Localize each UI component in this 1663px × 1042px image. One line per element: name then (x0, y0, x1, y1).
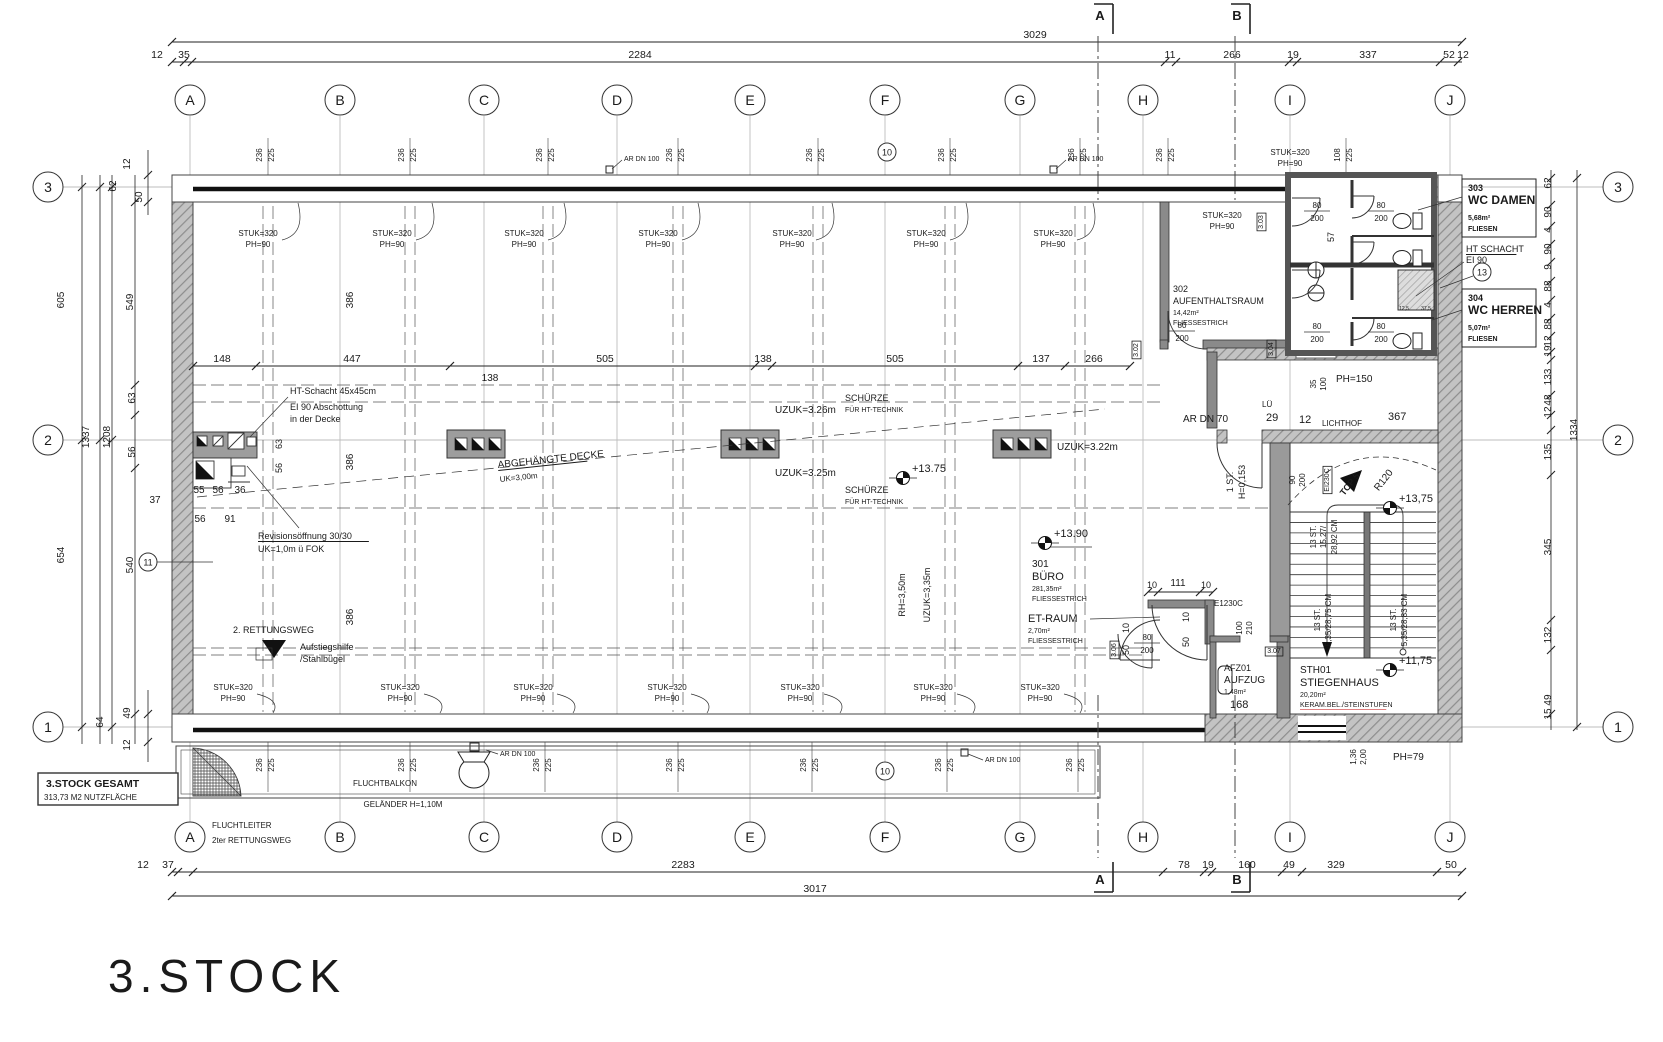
grid-label-D: D (612, 92, 622, 108)
annotation: 3.02 (1133, 343, 1140, 357)
floor-plan-page: AABBCCDDEEFFGGHHIIJJ33221130291235228411… (0, 0, 1663, 1042)
annotation: R120 (1372, 467, 1396, 493)
annotation: FLIESSESTRICH (1173, 320, 1228, 327)
annotation: UZUK=3.25m (775, 468, 836, 479)
door-size: 200 (1140, 646, 1154, 655)
dim-value: 52 (1443, 49, 1455, 61)
door-size: 200 (1310, 214, 1324, 223)
annotation: BÜRO (1032, 571, 1064, 583)
annotation: STIEGENHAUS (1300, 677, 1379, 689)
stuk-label: STUK=320 (906, 229, 946, 238)
annotation: 57 (1326, 232, 1336, 242)
annotation: 13 ST. (1313, 609, 1322, 632)
door-size: 80 (1377, 201, 1386, 210)
annotation: 12 (1299, 414, 1311, 426)
annotation: 301 (1032, 559, 1049, 570)
window-dim: 225 (677, 758, 686, 772)
annotation: 64 (95, 716, 106, 728)
annotation: 90 (1288, 475, 1297, 484)
annotation: 14,42m² (1173, 310, 1199, 317)
annotation: EI 90 Abschottung (290, 402, 363, 412)
grid-label-H: H (1138, 92, 1148, 108)
window-dim: 225 (409, 148, 418, 162)
level-value: +13,75 (1399, 493, 1433, 505)
annotation: 29 (1266, 412, 1278, 424)
stuk-leader (1077, 203, 1095, 240)
wc-block (1288, 175, 1434, 353)
annotation: 10 (1121, 623, 1131, 633)
annotation: 56 (212, 485, 224, 496)
toilet (1393, 334, 1411, 349)
dim-value: 19 (1287, 49, 1299, 61)
annotation: 56 (274, 463, 284, 473)
annotation: 3.07 (1267, 648, 1281, 655)
grid-label-J: J (1447, 92, 1454, 108)
stuk-label: STUK=320 (1020, 683, 1060, 692)
annotation: 12 (1543, 335, 1554, 347)
window-dim: 236 (665, 758, 674, 772)
stuk-label: PH=90 (512, 240, 537, 249)
annotation: LICHTHOF (1322, 419, 1362, 428)
annotation: KERAM.BEL./STEINSTUFEN (1300, 702, 1393, 709)
annotation: 605 (56, 291, 67, 308)
annotation: SCHÜRZE (845, 393, 889, 403)
grid-label-E: E (745, 92, 754, 108)
dim-value: 49 (1283, 859, 1295, 871)
annotation: HT SCHACHT (1466, 244, 1524, 254)
grid-label-J: J (1447, 829, 1454, 845)
window-dim: 225 (677, 148, 686, 162)
lift-shaft-north (1270, 636, 1288, 642)
window-dim: 236 (255, 758, 264, 772)
annotation: AUFZUG (1224, 675, 1265, 686)
stuk-leader (950, 203, 968, 240)
window-dim: 236 (255, 148, 264, 162)
window-dim: 225 (811, 758, 820, 772)
grid-label-C: C (479, 92, 489, 108)
window-dim: 236 (665, 148, 674, 162)
dim-value: 505 (886, 353, 904, 365)
annotation: TOP 5 (1338, 471, 1362, 497)
dim-value: 138 (754, 353, 772, 365)
wall-left (172, 175, 193, 742)
annotation: 13 ST. (1389, 609, 1398, 632)
annotation: 1 ST. (1225, 472, 1235, 493)
window-dim: 236 (535, 148, 544, 162)
annotation: 37 (149, 495, 161, 506)
annotation: 302 (1173, 284, 1188, 294)
stuk-label: PH=90 (1278, 159, 1303, 168)
note-number: 10 (882, 148, 892, 158)
dim-value: 148 (213, 353, 231, 365)
stuk-label: STUK=320 (913, 683, 953, 692)
annotation: 62 (108, 180, 119, 192)
drawing-title: 3.STOCK (108, 950, 346, 1002)
annotation: 2,70m² (1028, 628, 1050, 635)
section-letter-A: A (1095, 8, 1105, 23)
door-size: 80 (1377, 322, 1386, 331)
window-dim: 236 (1065, 758, 1074, 772)
annotation: SCHÜRZE (845, 485, 889, 495)
annotation: LÜ (1262, 400, 1272, 409)
section-letter-B: B (1232, 872, 1241, 887)
annotation: 13 ST. (1309, 526, 1318, 549)
door-size: 80 (1313, 201, 1322, 210)
annotation: HT-Schacht 45x45cm (290, 386, 376, 396)
grid-label-H: H (1138, 829, 1148, 845)
annotation: 138 (482, 373, 499, 384)
note-number: 10 (880, 767, 890, 777)
stuk-label: PH=90 (788, 694, 813, 703)
window-dim: 225 (1077, 758, 1086, 772)
dim-value: 2284 (628, 49, 652, 61)
annotation: 111 (1170, 578, 1186, 589)
lift-shaft-west (1210, 636, 1216, 718)
annotation: 3.04 (1268, 342, 1275, 356)
room-box-line: 5,07m² (1468, 325, 1491, 332)
annotation: 50 (1121, 645, 1131, 655)
stuk-label: PH=90 (646, 240, 671, 249)
grid-label-B: B (335, 92, 344, 108)
grid-label-1: 1 (44, 719, 52, 735)
annotation: 15,27/ (1319, 525, 1328, 548)
annotation: 4 (1543, 227, 1554, 233)
perimeter-walls (172, 175, 1462, 742)
level-value: +13.75 (912, 463, 946, 475)
window-dim: 108 (1333, 148, 1342, 162)
annotation: 56 (127, 446, 138, 458)
dim-value: 266 (1223, 49, 1241, 61)
legend-line1: 3.STOCK GESAMT (46, 778, 140, 790)
toilet (1393, 214, 1411, 229)
annotation: 2ter RETTUNGSWEG (212, 836, 291, 845)
annotation: UZUK=3,35m (922, 568, 932, 623)
annotation: FLIESSESTRICH (1032, 596, 1087, 603)
wall-etraum-north (1148, 600, 1214, 608)
window-dim: 225 (544, 758, 553, 772)
stuk-leader (257, 694, 275, 713)
stuk-label: STUK=320 (638, 229, 678, 238)
annotation: UZUK=3.22m (1057, 442, 1118, 453)
grid-label-1: 1 (1614, 719, 1622, 735)
stuk-label: STUK=320 (372, 229, 412, 238)
annotation: 12 (122, 739, 133, 751)
annotation: 20,20m² (1300, 692, 1326, 699)
stuk-label: STUK=320 (238, 229, 278, 238)
stuk-label: STUK=320 (772, 229, 812, 238)
grid-label-B: B (335, 829, 344, 845)
annotation: 90 (1543, 206, 1554, 218)
stuk-label: PH=90 (921, 694, 946, 703)
annotation: AUFENTHALTSRAUM (1173, 296, 1264, 306)
annotation: 100 (1319, 377, 1328, 391)
window-dim: 236 (397, 758, 406, 772)
grid-label-C: C (479, 829, 489, 845)
grid-label-G: G (1015, 829, 1026, 845)
window-dim: 225 (817, 148, 826, 162)
annotation: 168 (1230, 699, 1248, 711)
annotation: 9 (1543, 264, 1554, 270)
annotation: 28,92 CM (1330, 519, 1339, 554)
wall-stair-west (1270, 443, 1290, 636)
annotation: UK=3,00m (499, 471, 538, 484)
annotation: AR DN 100 (1068, 156, 1104, 163)
stuk-leader (682, 203, 700, 240)
annotation: 3.03 (1258, 215, 1265, 229)
annotation: 48 (1543, 394, 1554, 406)
annotation: UK=1,0m ü FOK (258, 544, 324, 554)
room-box-line: WC DAMEN (1468, 193, 1535, 207)
annotation: 133 (1543, 368, 1554, 385)
dim-value: 137 (1032, 353, 1050, 365)
dim-value: 11 (1165, 49, 1176, 61)
grid-label-G: G (1015, 92, 1026, 108)
annotation: EI 90 (1466, 255, 1487, 265)
window-dim: 225 (409, 758, 418, 772)
floor-plan-drawing: AABBCCDDEEFFGGHHIIJJ33221130291235228411… (0, 0, 1663, 1042)
annotation: E1230C (1214, 599, 1243, 608)
room-box-line: WC HERREN (1468, 303, 1542, 317)
annotation: ET-RAUM (1028, 613, 1078, 625)
annotation: 1334 (1569, 418, 1580, 441)
annotation: 2,00 (1359, 749, 1368, 765)
window-dim: 236 (805, 148, 814, 162)
stuk-label: STUK=320 (380, 683, 420, 692)
window-dim: 236 (799, 758, 808, 772)
annotation: 386 (345, 291, 356, 308)
note-number: 13 (1477, 268, 1487, 278)
ar-dn-marker (1050, 166, 1057, 173)
door-size: 200 (1374, 214, 1388, 223)
window-dim: 236 (1155, 148, 1164, 162)
annotation: 49 (122, 707, 133, 719)
annotation: 50 (134, 191, 145, 203)
room-box-line: FLIESEN (1468, 226, 1498, 233)
grid-label-3: 3 (1614, 179, 1622, 195)
stuk-label: PH=90 (521, 694, 546, 703)
annotation: 19 (1543, 345, 1554, 357)
annotation: RH=3,50m (897, 573, 907, 616)
grid-label-E: E (745, 829, 754, 845)
annotation: FLIESSESTRICH (1028, 638, 1083, 645)
window-dim: 225 (267, 758, 276, 772)
annotation: 55 (193, 485, 205, 496)
stuk-label: STUK=320 (647, 683, 687, 692)
grid-label-F: F (881, 92, 890, 108)
toilet (1393, 251, 1411, 266)
dim-value: 329 (1327, 859, 1345, 871)
grid-label-3: 3 (44, 179, 52, 195)
stuk-label: PH=90 (380, 240, 405, 249)
grid-label-I: I (1288, 829, 1292, 845)
annotation: 5,35/28,75 CM (1324, 593, 1333, 646)
stuk-label: STUK=320 (780, 683, 820, 692)
stuk-label: PH=90 (388, 694, 413, 703)
annotation: 88 (1543, 318, 1554, 330)
legend-box: 3.STOCK GESAMT 313,73 M2 NUTZFLÄCHE (38, 773, 178, 805)
annotation: 36 (234, 485, 246, 496)
dim-value: 37 (162, 859, 174, 871)
stuk-label: PH=90 (914, 240, 939, 249)
annotation: PH=150 (1336, 374, 1373, 385)
dim-value: 35 (178, 49, 190, 61)
window-dim: 225 (1345, 148, 1354, 162)
annotation: 10 (1181, 612, 1191, 622)
stuk-label: PH=90 (1041, 240, 1066, 249)
annotation: UZUK=3.26m (775, 405, 836, 416)
stuk-label: STUK=320 (1202, 211, 1242, 220)
ht-schacht-block (193, 432, 257, 488)
dim-value: 78 (1178, 859, 1190, 871)
stuk-label: PH=90 (1028, 694, 1053, 703)
annotation: FLUCHTLEITER (212, 821, 272, 830)
section-letter-B: B (1232, 8, 1241, 23)
annotation: 37,5 (1421, 306, 1431, 312)
annotation: AR DN 70 (1183, 414, 1228, 425)
section-letter-A: A (1095, 872, 1105, 887)
dim-value: 160 (1238, 859, 1256, 871)
level-value: +11,75 (1399, 655, 1432, 667)
annotation: 200 (1298, 473, 1307, 487)
wall-right (1438, 175, 1462, 742)
annotation: 1208 (102, 425, 113, 448)
annotation: AR DN 100 (985, 757, 1021, 764)
dim-value: 12 (137, 859, 149, 871)
grid-label-2: 2 (1614, 432, 1622, 448)
annotation: AR DN 100 (624, 156, 660, 163)
stuk-label: STUK=320 (513, 683, 553, 692)
dim-value: 447 (343, 353, 361, 365)
annotation: FÜR HT-TECHNIK (845, 406, 904, 414)
stuk-leader (424, 694, 442, 713)
stuk-leader (824, 694, 842, 713)
room-box-line: 303 (1468, 183, 1483, 193)
annotation: GELÄNDER H=1,10M (364, 800, 443, 809)
annotation: 1,36 (1349, 749, 1358, 765)
room-box-line: FLIESEN (1468, 336, 1498, 343)
wall-stair-north (1262, 430, 1438, 443)
annotation: 90 (1543, 243, 1554, 255)
annotation: 91 (224, 514, 236, 525)
annotation: 15 (1543, 708, 1554, 720)
dim-value: 12 (1457, 49, 1469, 61)
stuk-leader (691, 694, 709, 713)
grid-label-A: A (185, 829, 195, 845)
stair-window-gap (1298, 716, 1346, 740)
room-box-line: 5,68m² (1468, 215, 1491, 222)
funnel-top (458, 752, 490, 762)
stuk-label: PH=90 (221, 694, 246, 703)
annotation: 135 (1543, 443, 1554, 460)
dim-value: 337 (1359, 49, 1377, 61)
dim-value: 2283 (671, 859, 695, 871)
annotation: 63 (127, 392, 138, 404)
annotation: H=0,153 (1237, 465, 1247, 499)
annotation: 10 (1201, 580, 1211, 590)
annotation: Aufstiegshilfe (300, 642, 354, 652)
annotation: 62 (1543, 177, 1554, 189)
annotation: 345 (1543, 538, 1554, 555)
annotation: FÜR HT-TECHNIK (845, 498, 904, 506)
annotation: AFZ01 (1224, 663, 1251, 673)
door-lift-lobby (1152, 605, 1207, 660)
room-box-line: 304 (1468, 293, 1483, 303)
annotation: 1337 (81, 425, 92, 448)
stuk-leader (1064, 694, 1082, 713)
window-dim: 236 (532, 758, 541, 772)
annotation: 35 (1309, 379, 1318, 388)
stuk-leader (548, 203, 566, 240)
dim-value: 12 (151, 49, 163, 61)
level-value: +13.90 (1054, 528, 1088, 540)
annotation: 1,48m² (1224, 689, 1246, 696)
window-dim: 225 (267, 148, 276, 162)
annotation: ABGEHÄNGTE DECKE (497, 448, 605, 471)
grid-label-F: F (881, 829, 890, 845)
window-dim: 225 (1167, 148, 1176, 162)
stuk-label: STUK=320 (504, 229, 544, 238)
stuk-leader (557, 694, 575, 713)
grid-label-D: D (612, 829, 622, 845)
annotation: 281,35m² (1032, 586, 1062, 593)
window-dim: 225 (949, 148, 958, 162)
annotation: 2. RETTUNGSWEG (233, 625, 314, 635)
stuk-leader (957, 694, 975, 713)
annotation: STH01 (1300, 665, 1332, 676)
ar-dn-marker (606, 166, 613, 173)
note-number: 11 (143, 558, 152, 568)
annotation: PH=79 (1393, 752, 1424, 763)
annotation: 10 (1147, 580, 1157, 590)
annotation: 132 (1543, 626, 1554, 643)
stuk-leader (416, 203, 434, 240)
annotation: 5,35/28,83 CM (1400, 593, 1409, 646)
stuk-label: PH=90 (1210, 222, 1235, 231)
annotation: 12 (1543, 406, 1554, 418)
dim-value: 266 (1085, 353, 1103, 365)
legend-line2: 313,73 M2 NUTZFLÄCHE (44, 793, 137, 802)
window-dim: 236 (937, 148, 946, 162)
annotation: 50 (1181, 637, 1191, 647)
annotation: AR DN 100 (500, 751, 536, 758)
door-size: 80 (1143, 633, 1152, 642)
door-size: 200 (1175, 334, 1189, 343)
stuk-label: STUK=320 (1270, 148, 1310, 157)
annotation: 654 (56, 546, 67, 563)
annotation: 3.06 (1111, 643, 1118, 657)
stuk-label: STUK=320 (213, 683, 253, 692)
dim-value: 50 (1445, 859, 1457, 871)
door-size: 200 (1310, 335, 1324, 344)
stuk-label: STUK=320 (1033, 229, 1073, 238)
window-dim: 225 (946, 758, 955, 772)
annotation: 386 (345, 608, 356, 625)
dim-value: 505 (596, 353, 614, 365)
window-dim: 236 (934, 758, 943, 772)
dim-value: 3017 (803, 883, 827, 895)
door-size: 200 (1374, 335, 1388, 344)
annotation: 367 (1388, 411, 1406, 423)
annotation: 56 (194, 514, 206, 525)
toilet-tank (1413, 213, 1422, 229)
annotation: 386 (345, 453, 356, 470)
grid-label-2: 2 (44, 432, 52, 448)
annotation: Revisionsöffnung 30/30 (258, 531, 352, 541)
grid-label-A: A (185, 92, 195, 108)
annotation: FLUCHTBALKON (353, 779, 417, 788)
stuk-label: PH=90 (780, 240, 805, 249)
annotation: 210 (1245, 621, 1254, 635)
